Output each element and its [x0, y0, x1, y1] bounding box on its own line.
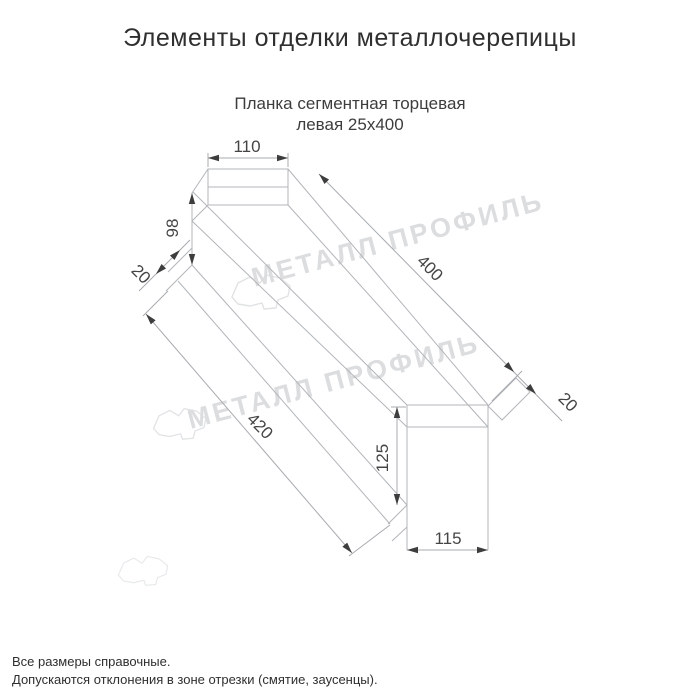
dim-20-back-label: 20: [127, 261, 154, 288]
watermark-layer: МЕТАЛЛ ПРОФИЛЬ МЕТАЛЛ ПРОФИЛЬ: [118, 186, 547, 585]
dim-420: 420: [143, 291, 390, 556]
watermark-text: МЕТАЛЛ ПРОФИЛЬ: [184, 328, 483, 435]
footer-notes: Все размеры справочные. Допускаются откл…: [12, 653, 378, 689]
dim-400-label: 400: [413, 251, 446, 284]
dim-115: 115: [407, 529, 488, 553]
footer-note2: Допускаются отклонения в зоне отрезки (с…: [12, 672, 378, 687]
metal-profile-cloud-logo: [118, 556, 167, 585]
page: Элементы отделки металлочерепицы Планка …: [0, 0, 700, 700]
dim-115-label: 115: [434, 529, 461, 548]
watermark-text: МЕТАЛЛ ПРОФИЛЬ: [248, 186, 547, 293]
dim-20-front-label: 20: [554, 389, 581, 416]
dim-110: 110: [208, 137, 288, 167]
near-end-outline: [388, 378, 530, 550]
dim-125-label: 125: [373, 444, 392, 472]
footer-note1: Все размеры справочные.: [12, 654, 170, 669]
technical-drawing: МЕТАЛЛ ПРОФИЛЬ МЕТАЛЛ ПРОФИЛЬ: [0, 0, 700, 700]
dim-98: 98: [163, 193, 195, 265]
dim-98-label: 98: [163, 219, 182, 238]
dim-110-label: 110: [233, 137, 260, 156]
